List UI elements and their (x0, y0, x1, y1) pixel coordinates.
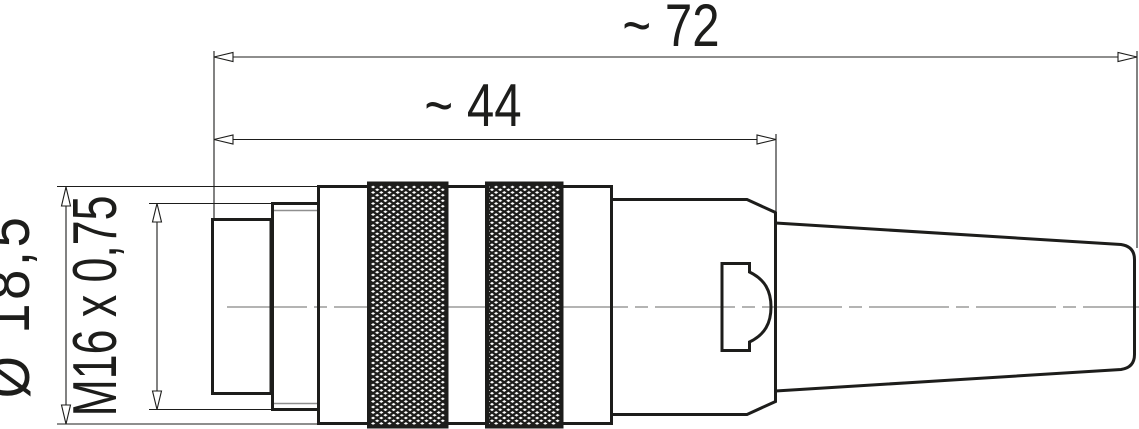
dim-label-front-length: ~ 44 (424, 71, 521, 139)
connector-outline (213, 184, 1135, 427)
knurled-ring-front (369, 184, 447, 427)
dim-label-diameter: Ø 18,5 (0, 214, 43, 399)
knurled-ring-rear (487, 184, 562, 427)
arrowhead-left-icon (214, 53, 233, 62)
dimension-overall-length: ~ 72 (214, 0, 1137, 248)
dim-label-thread: M16 x 0,75 (61, 196, 130, 417)
arrowhead-up-icon (153, 204, 162, 223)
technical-drawing-canvas: ~ 72 ~ 44 Ø 18,5 (0, 0, 1139, 429)
arrowhead-right-icon (1118, 53, 1137, 62)
arrowhead-down-icon (153, 391, 162, 410)
dim-label-overall-length: ~ 72 (622, 0, 719, 59)
arrowhead-right-icon (757, 135, 776, 144)
connector-dimension-drawing: ~ 72 ~ 44 Ø 18,5 (0, 0, 1139, 429)
main-body (319, 187, 612, 424)
dimension-thread: M16 x 0,75 (61, 196, 273, 417)
arrowhead-left-icon (214, 135, 233, 144)
